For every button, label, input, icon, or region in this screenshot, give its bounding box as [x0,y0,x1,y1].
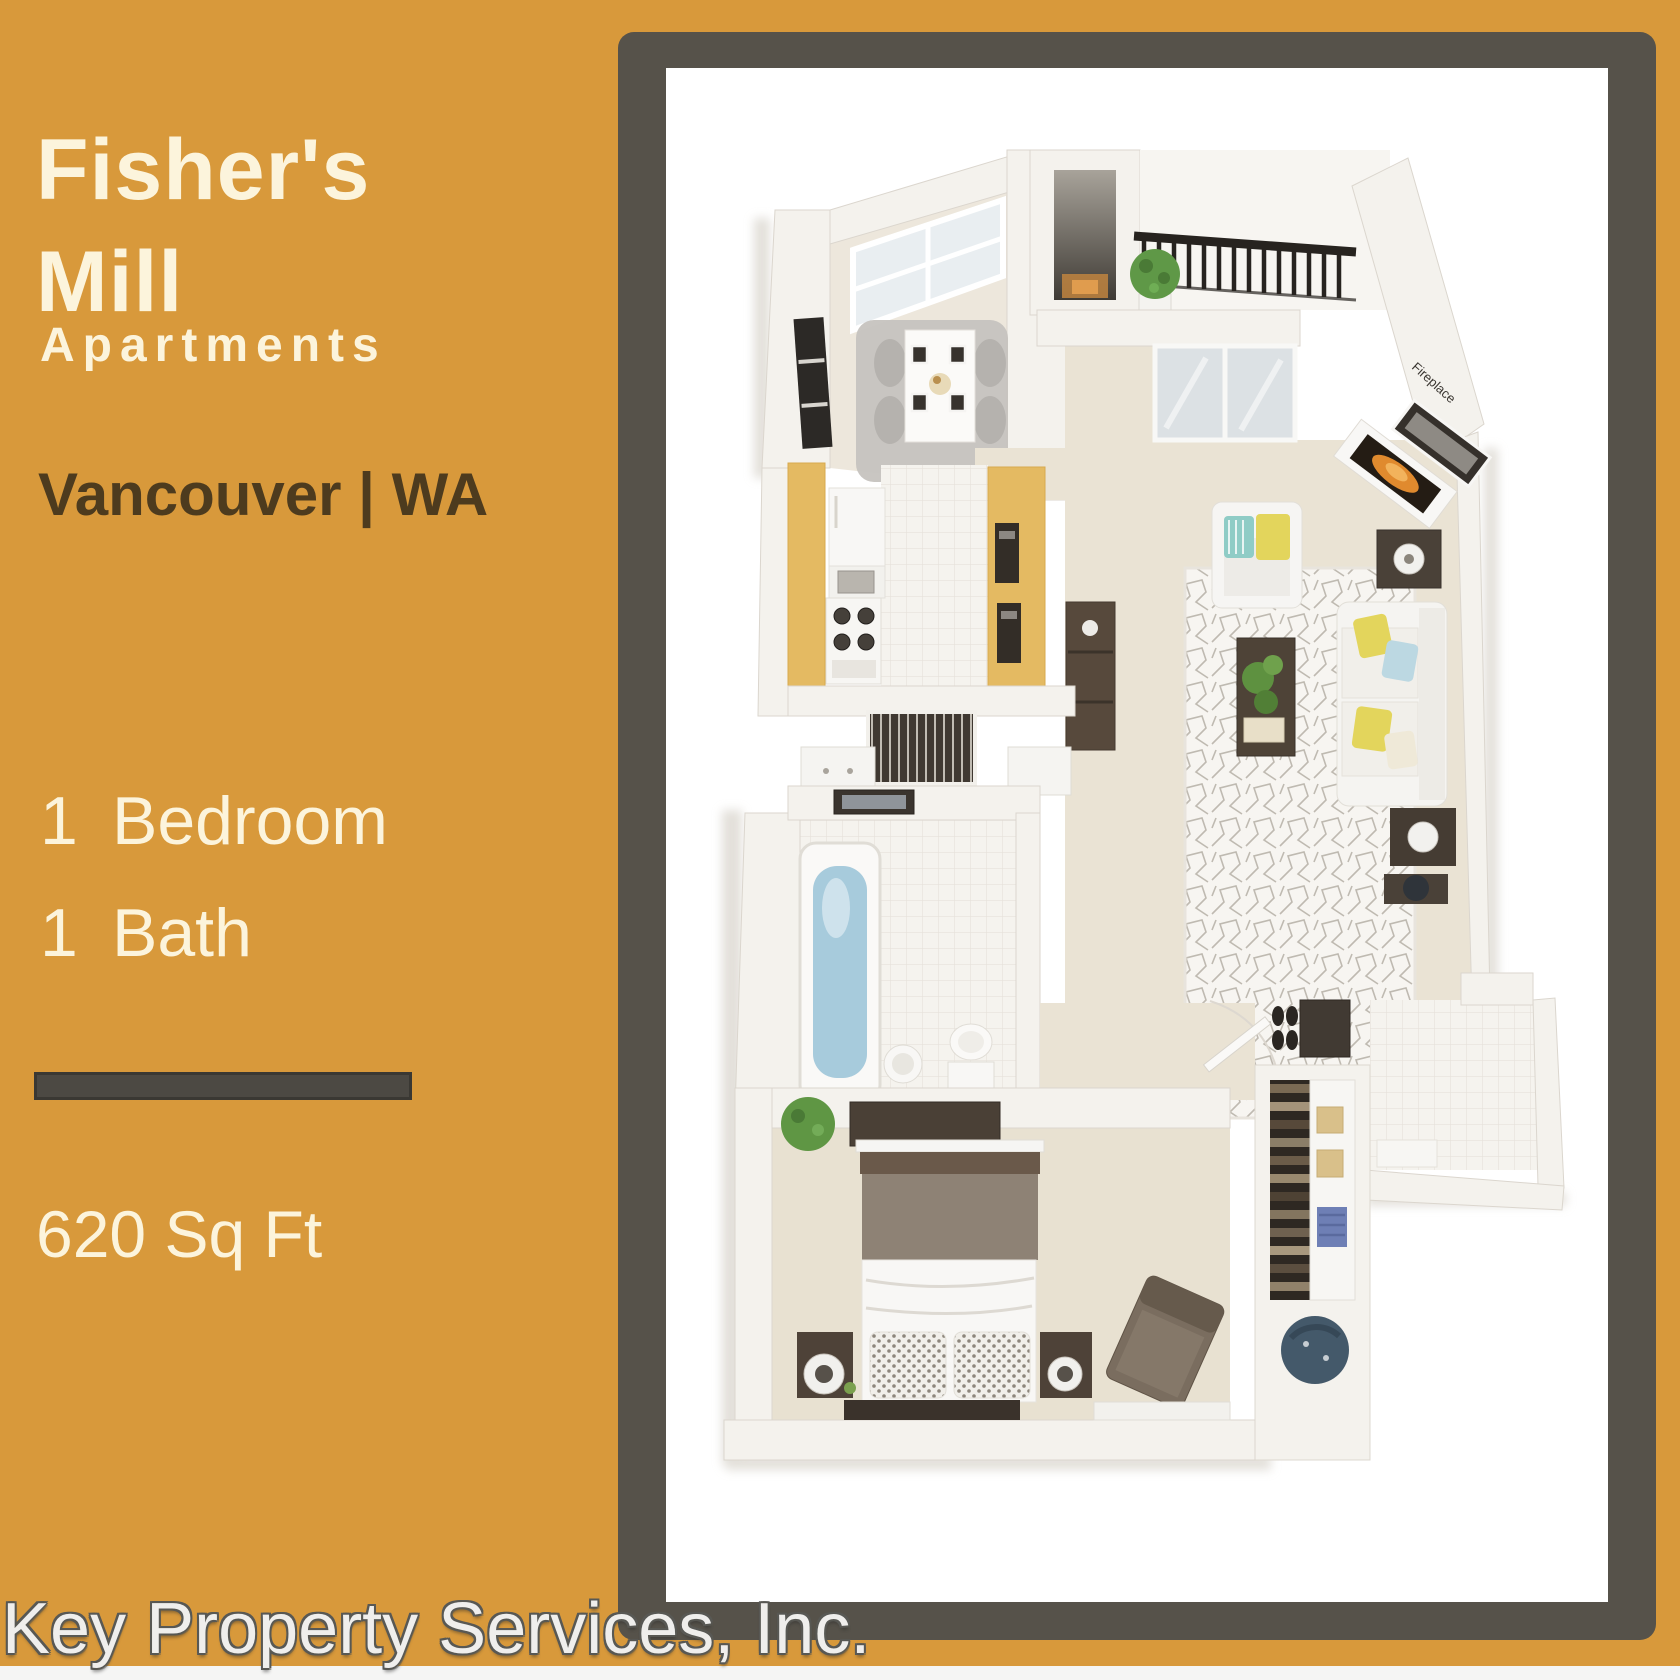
property-location: Vancouver | WA [38,460,488,529]
feature-baths: 1 Bath [40,894,388,1006]
property-title-line2: Mill [36,234,183,330]
bedroom-plant [781,1097,835,1151]
bedroom-top-wall [772,1088,1230,1128]
dresser [850,1102,1000,1146]
entry-right-wall [1533,998,1564,1188]
bath-label: Bath [112,894,252,972]
kitchen-left-wall [758,468,788,716]
entry-mat [1377,1140,1437,1167]
kitchen [758,463,1075,716]
storage-box [1317,1107,1343,1133]
storage-cabinet [1300,1000,1350,1057]
living-top-wall [1037,310,1300,346]
divider-bar [34,1072,412,1100]
coffee-table [1237,638,1295,756]
kitchen-floor [881,465,988,690]
storage-box-blue [1317,1207,1347,1247]
nightstand-left [797,1332,856,1398]
armchair [1212,502,1302,608]
bathroom-mirror [834,790,914,814]
square-footage: 620 Sq Ft [36,1196,322,1272]
floor-plan-panel: Fireplace [666,68,1608,1602]
entry-top-wall [1461,973,1533,1005]
bedroom-shelf [1094,1402,1230,1420]
refrigerator [829,488,885,566]
speaker-stand [1384,874,1448,904]
end-table [1390,808,1456,866]
footer-company-name: Key Property Services, Inc. [2,1588,870,1670]
bathroom-right-wall [1016,813,1040,1103]
property-title-line1: Fisher's [36,122,370,218]
bathtub [800,843,880,1101]
dining-table [905,330,975,442]
bedroom [724,1088,1255,1460]
entry [1365,973,1564,1210]
feature-bedrooms: 1 Bedroom [40,782,388,894]
kitchen-sink [829,566,885,598]
bathroom [735,786,1040,1110]
property-subtitle: Apartments [40,318,387,373]
sliding-glass-door [1155,346,1295,440]
bedroom-label: Bedroom [112,782,388,860]
bathroom-left-wall [735,813,800,1110]
closet [1255,1000,1370,1460]
media-console [1066,602,1115,750]
bedroom-bottom-wall [724,1420,1255,1460]
storage-box [1317,1150,1343,1177]
chimney [1030,150,1140,315]
kitchen-cabinets-left [788,463,825,690]
info-sidebar: Fisher'sMill Apartments Vancouver | WA 1… [0,0,600,1680]
bedroom-left-wall [735,1088,772,1460]
nightstand-right [1040,1332,1092,1398]
side-table [1377,530,1441,588]
laundry-closet [801,712,1071,795]
stove [826,598,881,684]
beanbag [1281,1316,1349,1384]
dining-room [762,150,1068,500]
bed [844,1140,1044,1420]
bed-bench [844,1400,1020,1420]
listing-poster: Fisher'sMill Apartments Vancouver | WA 1… [0,0,1680,1680]
floor-plan-illustration: Fireplace [666,68,1608,1602]
sofa [1337,602,1447,806]
property-title: Fisher'sMill [36,114,370,338]
bath-count: 1 [40,894,112,972]
floor-plan-frame: Fireplace [618,32,1656,1640]
feature-list: 1 Bedroom 1 Bath [40,782,388,1006]
pedestal-sink [884,1045,922,1083]
bedroom-count: 1 [40,782,112,860]
hallway [1040,1001,1278,1100]
